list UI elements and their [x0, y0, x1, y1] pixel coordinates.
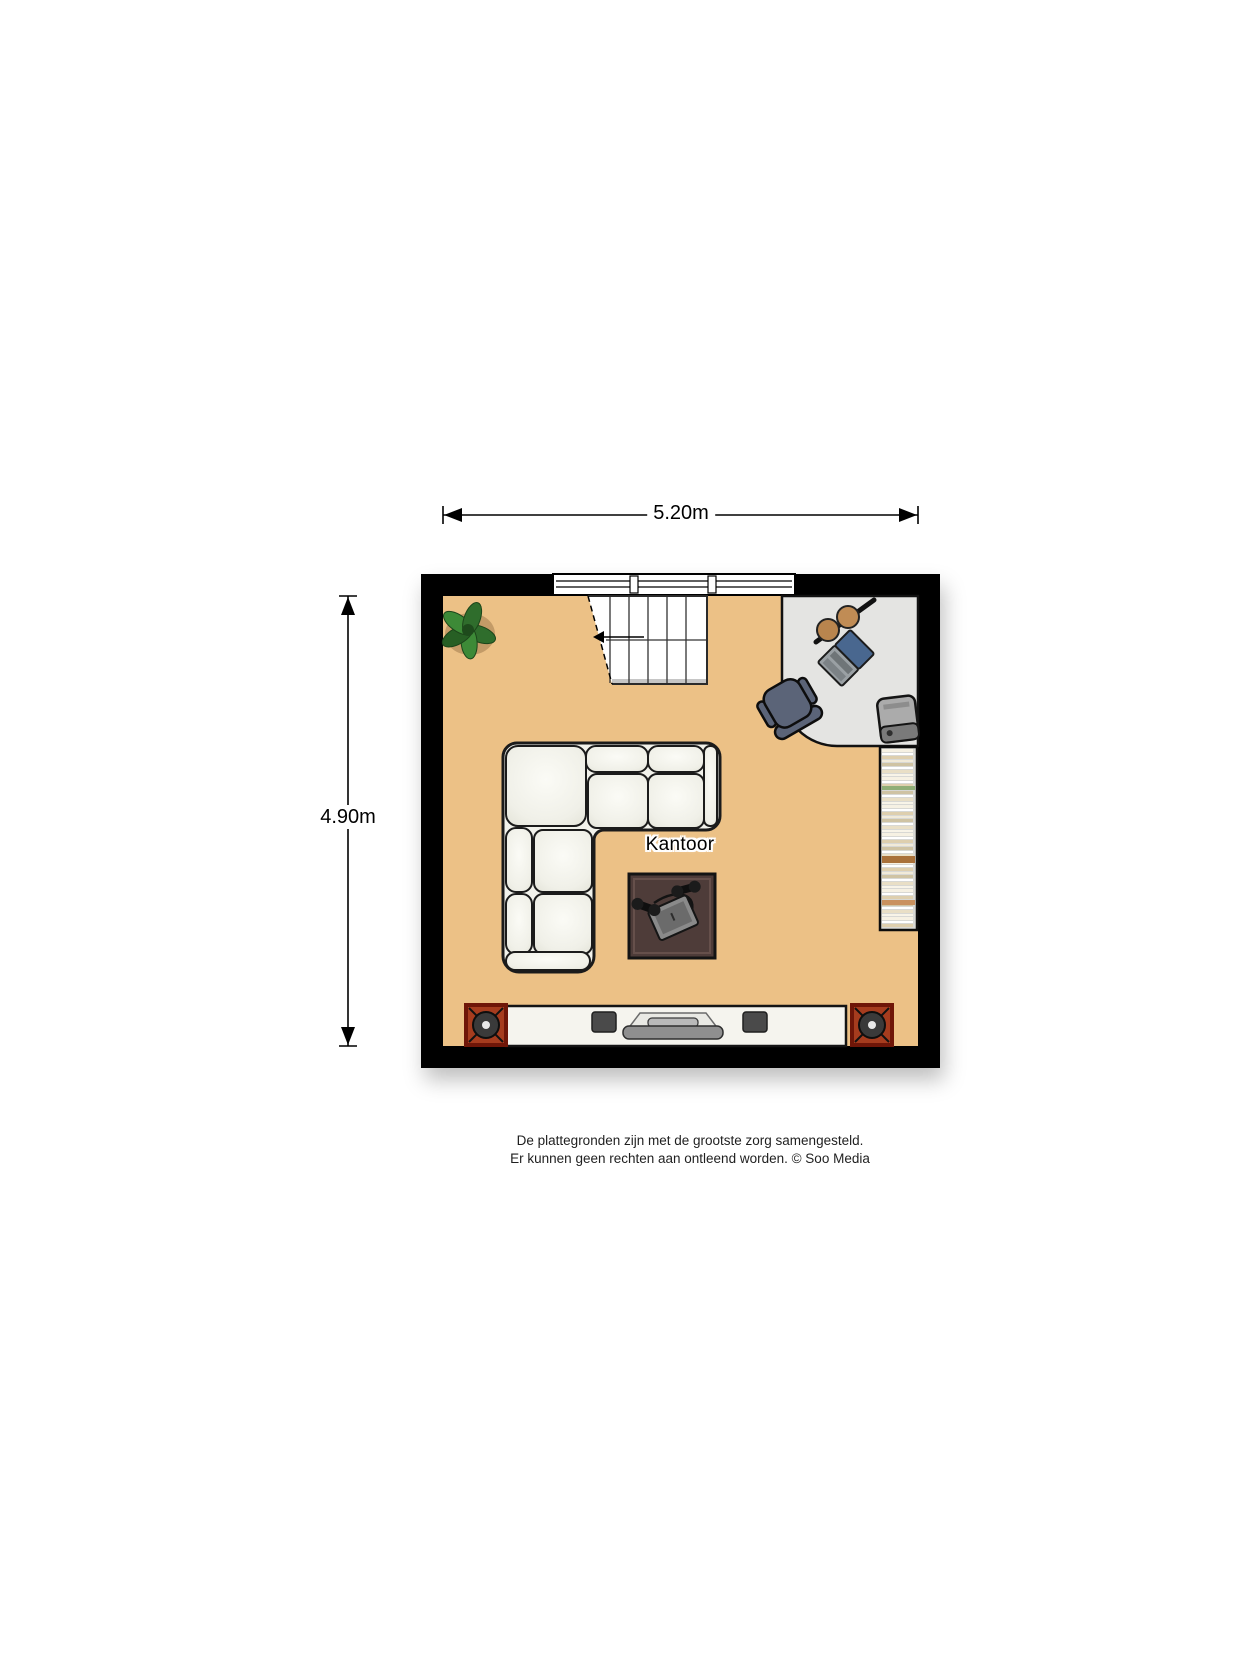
sofa-armrest [704, 746, 717, 826]
speaker-icon-right [852, 1005, 892, 1045]
tv-cabinet [506, 1006, 846, 1046]
sofa-seat-cushion [588, 774, 648, 828]
floor-plan [0, 0, 1260, 1680]
sofa-armrest [506, 952, 590, 970]
sofa-back-cushion [506, 828, 532, 892]
speaker-icon-left [466, 1005, 506, 1045]
window-divider [708, 576, 716, 593]
sofa-seat-cushion [534, 894, 592, 954]
sofa-back-cushion [648, 746, 704, 772]
footer-line-2: Er kunnen geen rechten aan ontleend word… [510, 1150, 870, 1168]
height-dimension-label: 4.90m [314, 805, 382, 829]
sofa-corner-cushion [506, 746, 586, 826]
window [553, 574, 795, 595]
tv-icon [623, 1013, 723, 1039]
cabinet-speaker-right [743, 1012, 767, 1032]
sofa-seat-cushion [534, 830, 592, 892]
sofa-back-cushion [586, 746, 648, 772]
footer-line-1: De plattegronden zijn met de grootste zo… [510, 1132, 870, 1150]
page-canvas: 5.20m 4.90m Kantoor De plattegronden zij… [0, 0, 1260, 1680]
room-label: Kantoor [646, 834, 715, 856]
sofa-seat-cushion [648, 774, 704, 828]
bookshelf [880, 747, 917, 930]
footer-disclaimer: De plattegronden zijn met de grootste zo… [510, 1132, 870, 1168]
cabinet-speaker-left [592, 1012, 616, 1032]
width-dimension-label: 5.20m [647, 501, 715, 525]
coffee-table [629, 874, 715, 958]
window-divider [630, 576, 638, 593]
sofa-back-cushion [506, 894, 532, 954]
printer-icon [876, 695, 919, 743]
